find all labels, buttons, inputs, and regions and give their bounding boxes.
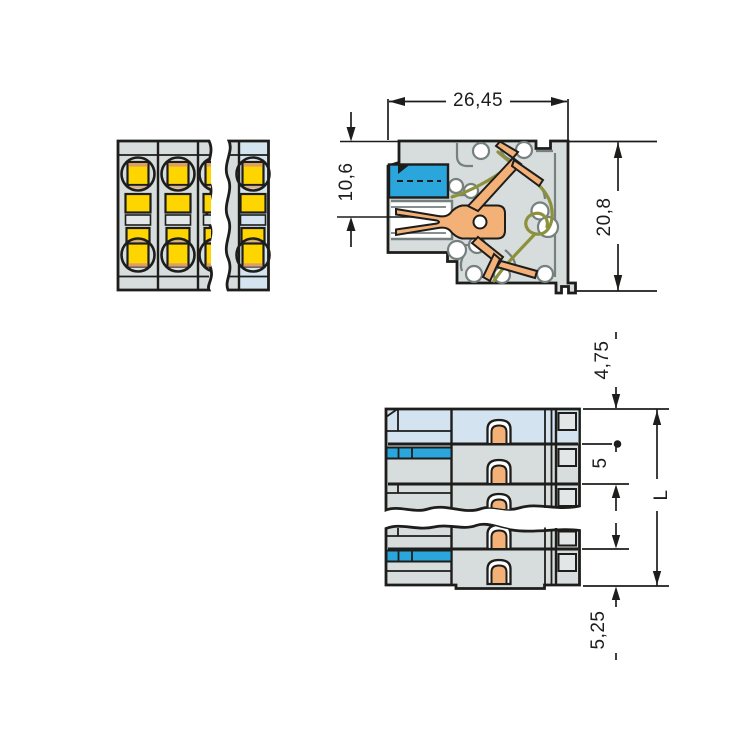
dim-bottom-offset-label: 5,25: [588, 598, 610, 662]
side-section-view: [337, 141, 576, 293]
bottom-view: [386, 409, 580, 589]
dim-overall-length-label: L: [651, 480, 673, 510]
dimension-origin-dot: [614, 440, 622, 448]
dim-overall-width-label: 26,45: [437, 90, 519, 112]
contact-arches-upper: [488, 420, 511, 518]
dim-overall-height-label: 20,8: [594, 185, 616, 249]
dim-pole-pitch-label: 5: [590, 448, 612, 478]
connector-drawing: [0, 0, 750, 750]
dim-top-offset-label: 4,75: [592, 328, 614, 392]
contact-hole: [474, 216, 487, 229]
dim-entry-height-label: 10,6: [336, 150, 358, 214]
front-view: [118, 141, 270, 290]
technical-drawing-canvas: 26,45 10,6 20,8 4,75 5 L 5,25: [0, 0, 750, 750]
first-pole-tint: [388, 411, 579, 444]
